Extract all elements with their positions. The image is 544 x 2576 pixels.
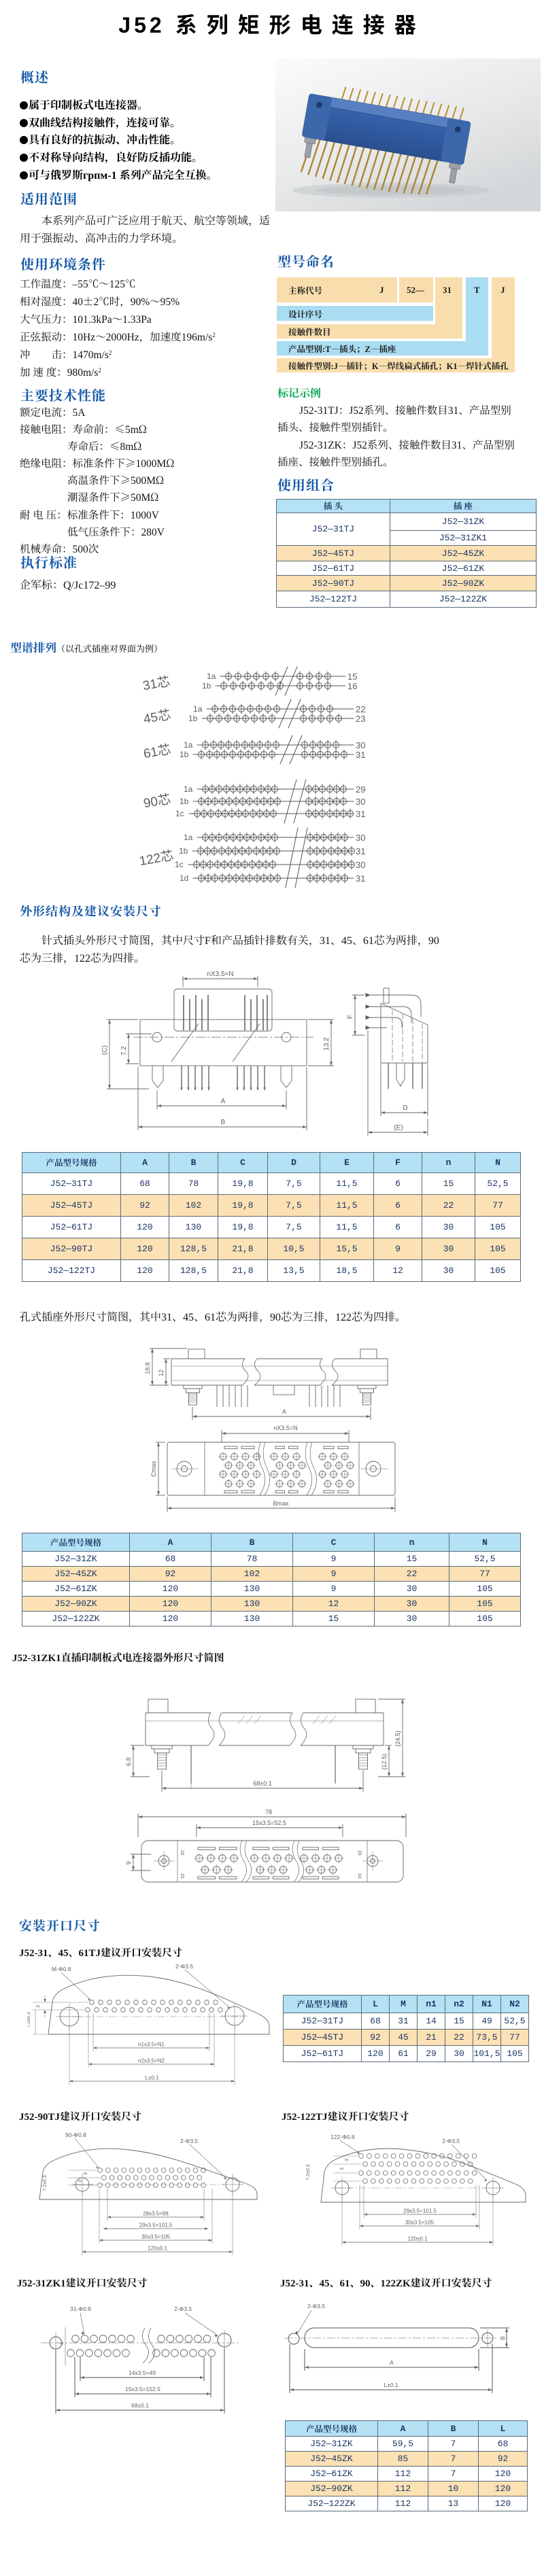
svg-text:2-Φ3.5: 2-Φ3.5 [307,2303,325,2310]
svg-text:3: 3 [60,2342,65,2345]
svg-text:F: F [347,1015,354,1019]
svg-text:(24.5): (24.5) [394,1730,401,1747]
svg-text:1b: 1b [202,681,211,691]
svg-text:1a: 1a [193,704,203,714]
svg-text:L±0.1: L±0.1 [384,2382,398,2388]
svg-text:3: 3 [78,2180,83,2182]
svg-text:18.8: 18.8 [144,1362,151,1374]
svg-text:31: 31 [356,809,365,819]
svg-text:3: 3 [345,2159,350,2161]
svg-text:3: 3 [36,2005,41,2008]
svg-text:1b: 1b [180,750,189,759]
svg-text:3: 3 [84,2172,88,2175]
svg-text:30: 30 [356,797,365,807]
svg-text:Cmax: Cmax [150,1461,157,1477]
svg-text:14x3.5=49: 14x3.5=49 [129,2369,156,2376]
svg-text:120±0.1: 120±0.1 [148,2246,167,2252]
svg-text:1b: 1b [357,1850,362,1856]
svg-text:45芯: 45芯 [142,708,171,727]
svg-text:nX3.5=N: nX3.5=N [207,971,233,978]
svg-text:n1x3.5=N1: n1x3.5=N1 [138,2042,165,2048]
svg-text:30: 30 [356,740,365,750]
svg-text:A: A [221,1098,226,1105]
svg-text:A: A [390,2359,394,2366]
svg-text:1b: 1b [179,846,188,856]
svg-text:B: B [221,1119,226,1126]
svg-text:15x3.5=52.5: 15x3.5=52.5 [252,1820,286,1826]
svg-text:7.2±0.3: 7.2±0.3 [27,2012,31,2027]
svg-text:D: D [403,1104,407,1112]
svg-text:30: 30 [356,833,365,843]
svg-text:31: 31 [356,750,365,760]
svg-text:2-Φ3.5: 2-Φ3.5 [442,2138,460,2144]
svg-text:29x3.5=101.5: 29x3.5=101.5 [139,2223,173,2229]
svg-text:29x3.5=101.5: 29x3.5=101.5 [403,2208,437,2214]
svg-text:(12.5): (12.5) [381,1754,388,1770]
svg-text:1a: 1a [207,672,216,681]
svg-text:28x3.5=98: 28x3.5=98 [143,2211,169,2217]
svg-text:29: 29 [356,784,365,795]
svg-text:30x3.5=105: 30x3.5=105 [405,2220,435,2226]
svg-text:1c: 1c [175,809,184,818]
svg-text:B: B [499,2336,506,2340]
svg-text:90-Φ0.8: 90-Φ0.8 [65,2131,86,2138]
svg-text:2-Φ3.5: 2-Φ3.5 [174,2305,192,2312]
svg-text:90芯: 90芯 [142,792,171,812]
svg-text:31: 31 [356,846,365,856]
svg-text:1b: 1b [188,714,198,723]
svg-text:9: 9 [125,1861,132,1864]
svg-text:1a: 1a [357,1873,362,1879]
svg-text:7.2±0.3: 7.2±0.3 [306,2164,311,2180]
svg-text:7.2±0.3: 7.2±0.3 [43,2175,48,2191]
svg-text:1a: 1a [184,784,193,794]
svg-text:16: 16 [180,1850,184,1856]
svg-text:2-Φ3.5: 2-Φ3.5 [175,1963,193,1970]
svg-text:n2x3.5=N2: n2x3.5=N2 [138,2058,165,2064]
svg-text:L±0.1: L±0.1 [146,2075,160,2081]
svg-text:1c: 1c [175,860,184,869]
svg-text:13.2: 13.2 [323,1037,330,1051]
svg-text:15: 15 [180,1873,184,1879]
svg-text:A: A [282,1408,286,1415]
svg-text:22: 22 [356,704,365,714]
svg-text:15x3.5=152.5: 15x3.5=152.5 [125,2386,160,2392]
svg-text:(C): (C) [101,1045,109,1055]
svg-text:(E): (E) [394,1124,403,1132]
svg-text:3: 3 [340,2168,345,2170]
svg-text:nX3.5=N: nX3.5=N [273,1425,297,1431]
svg-text:68±0.1: 68±0.1 [131,2402,149,2409]
svg-text:M-Φ0.8: M-Φ0.8 [52,1966,71,1972]
svg-text:31芯: 31芯 [141,674,171,694]
svg-text:15: 15 [347,672,357,682]
svg-text:1a: 1a [184,833,193,842]
svg-text:120±0.1: 120±0.1 [408,2236,428,2242]
svg-text:31: 31 [356,873,365,884]
svg-text:1a: 1a [184,740,193,750]
svg-text:7.2: 7.2 [120,1046,128,1056]
svg-text:61芯: 61芯 [142,742,171,762]
svg-text:16: 16 [347,681,357,691]
svg-text:31-Φ0.8: 31-Φ0.8 [70,2305,91,2312]
svg-text:6.8: 6.8 [125,1758,132,1766]
svg-text:122芯: 122芯 [138,848,175,869]
svg-text:1b: 1b [180,797,189,806]
svg-text:68±0.1: 68±0.1 [253,1780,271,1787]
svg-text:30x3.5=105: 30x3.5=105 [141,2234,171,2240]
svg-text:23: 23 [356,714,365,724]
svg-text:12: 12 [158,1370,165,1376]
svg-text:1d: 1d [180,873,188,883]
svg-text:78: 78 [265,1809,272,1815]
svg-text:2-Φ3.5: 2-Φ3.5 [180,2138,198,2144]
svg-text:Bmax: Bmax [273,1500,289,1507]
svg-text:122-Φ0.8: 122-Φ0.8 [330,2134,355,2140]
svg-text:30: 30 [356,860,365,870]
